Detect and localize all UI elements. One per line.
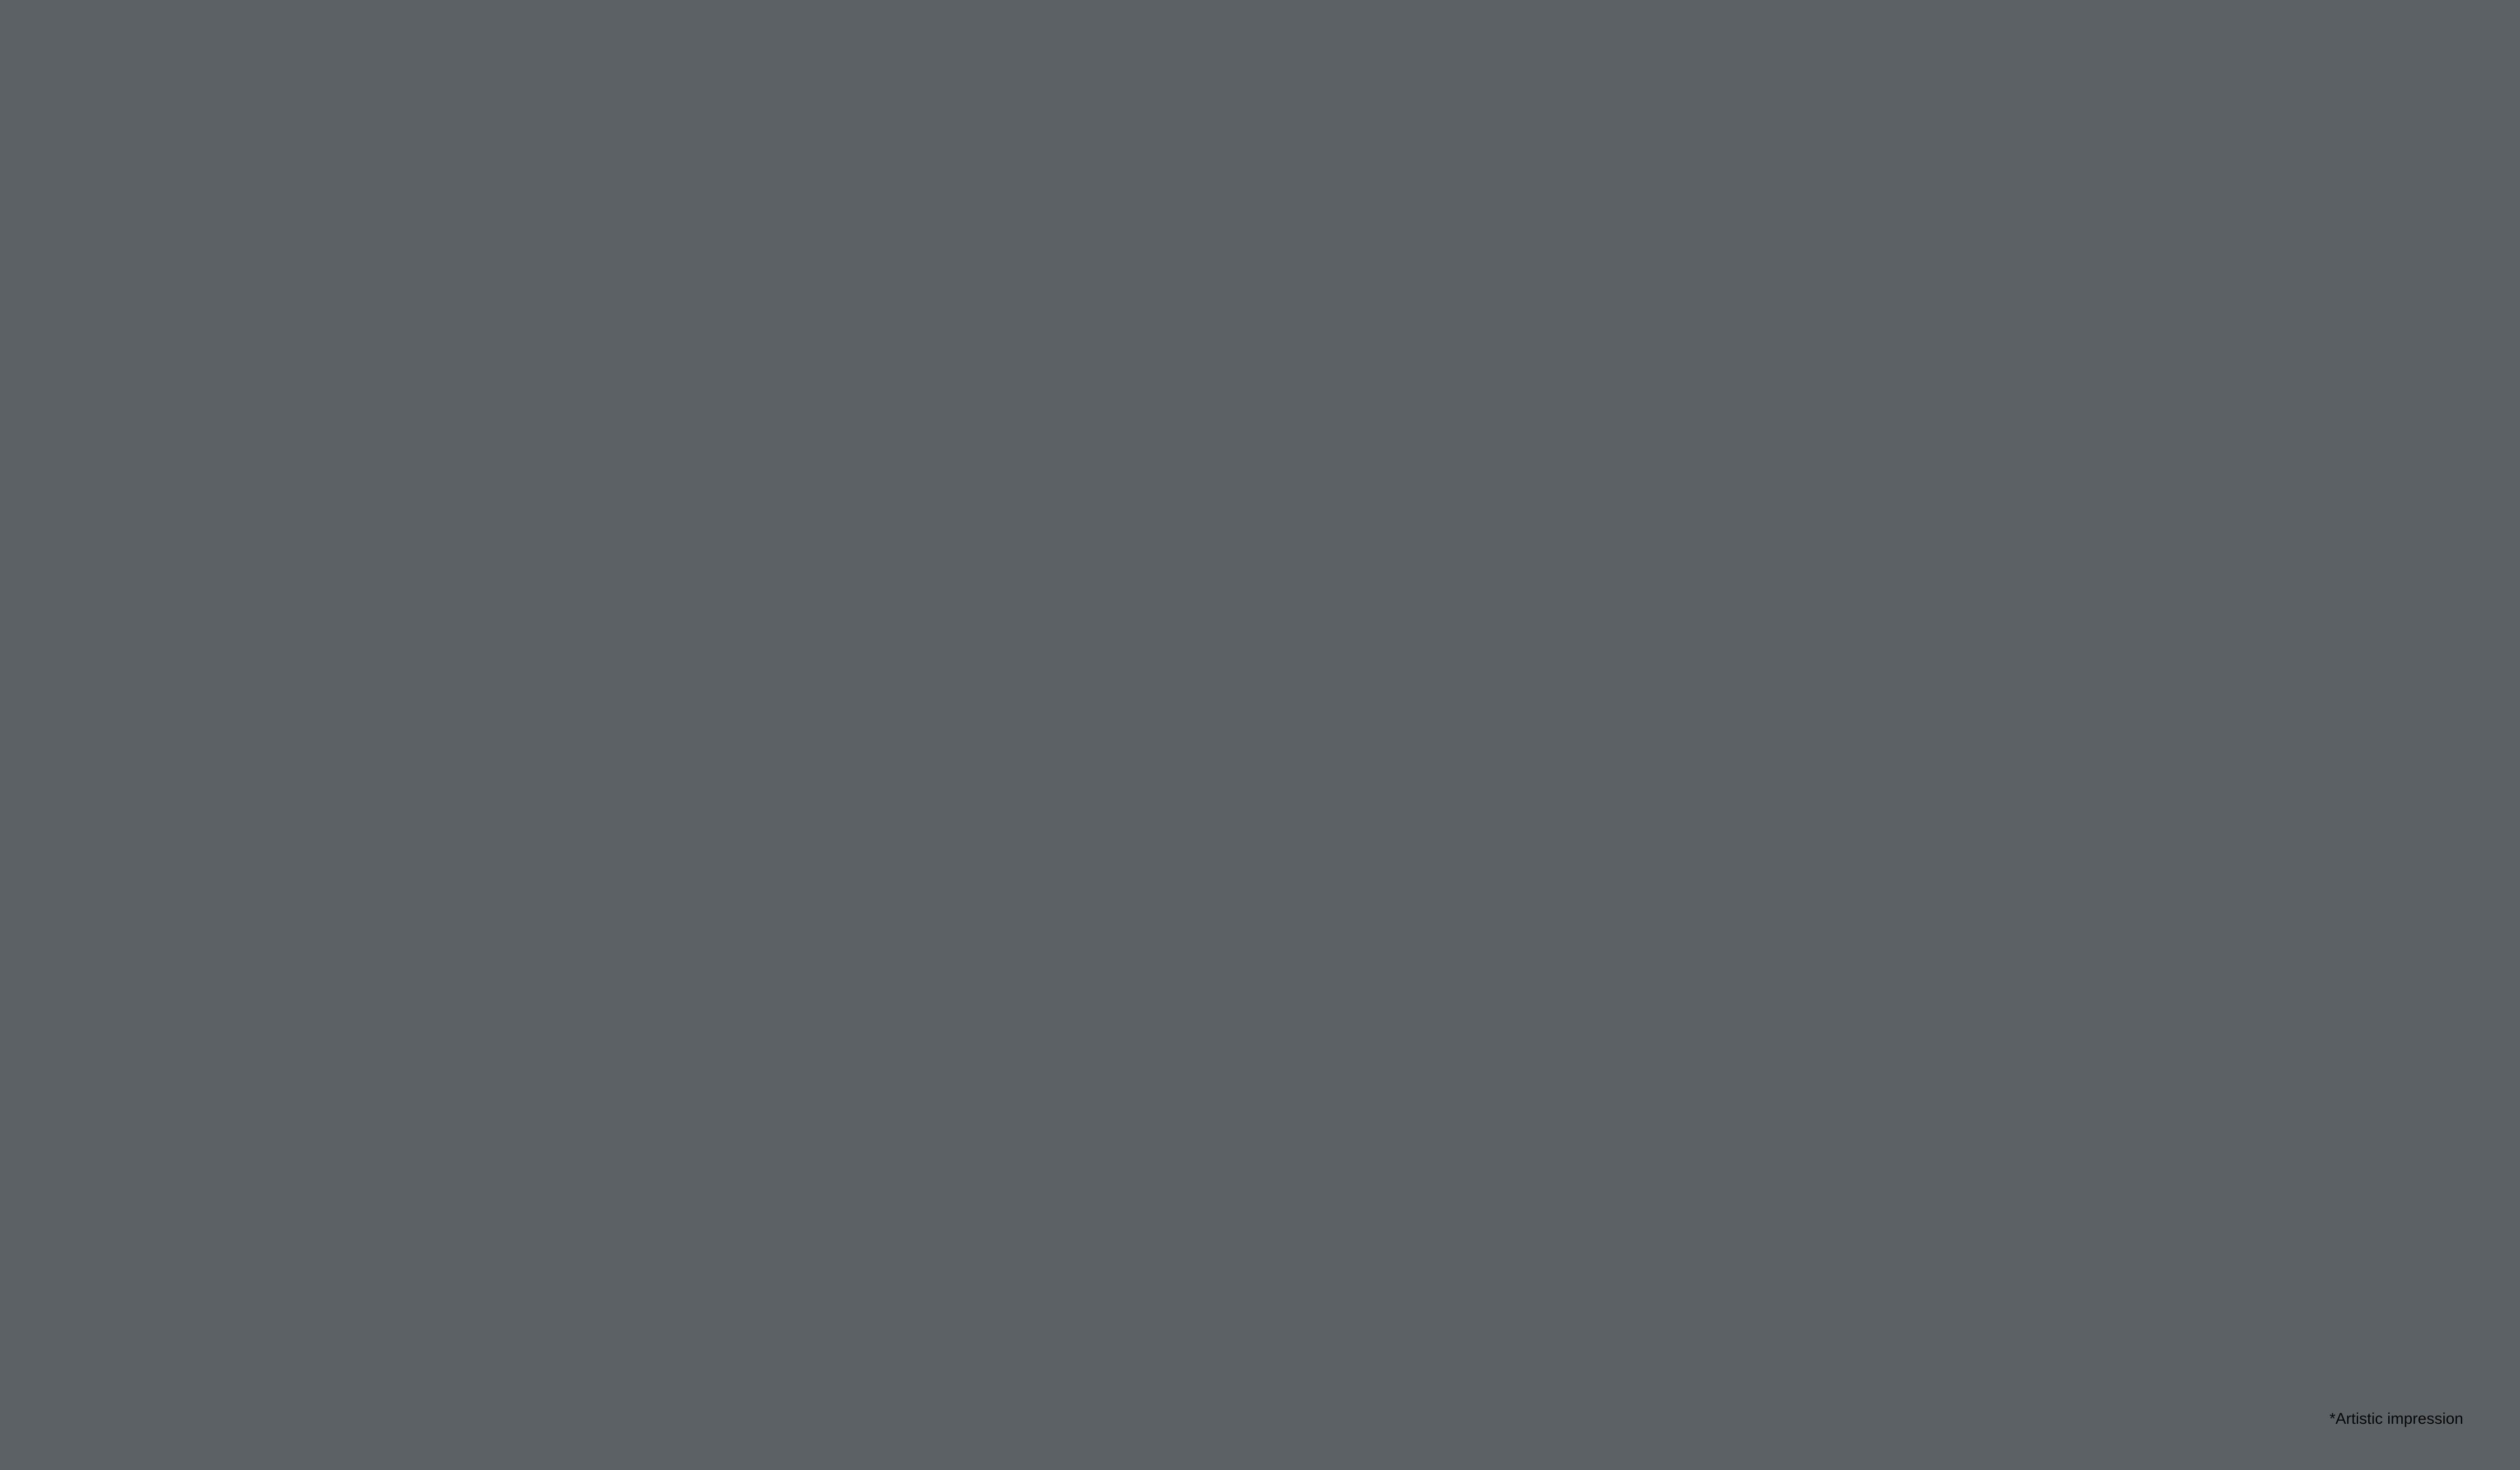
aerial-render-stage: *Artistic impression bbox=[0, 0, 2520, 1470]
artistic-impression-note: *Artistic impression bbox=[2329, 1410, 2463, 1427]
residential-complex-aerial-view: *Artistic impression bbox=[0, 0, 2520, 1470]
